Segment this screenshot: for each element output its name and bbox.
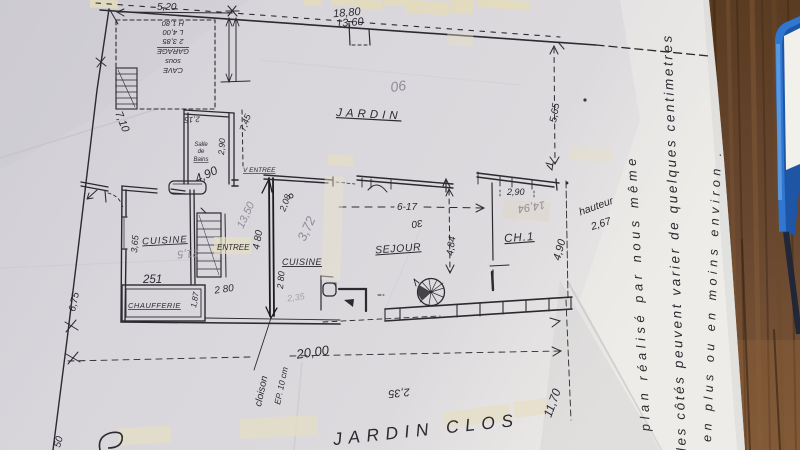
svg-text:2 80: 2 80 bbox=[275, 271, 287, 290]
svg-text:V ENTREE: V ENTREE bbox=[243, 167, 276, 174]
svg-text:GARAGE: GARAGE bbox=[156, 47, 189, 56]
svg-text:13,60: 13,60 bbox=[336, 16, 365, 30]
svg-text:2,90: 2,90 bbox=[216, 138, 227, 156]
svg-text:6-17: 6-17 bbox=[397, 202, 417, 213]
svg-text:H 1,80: H 1,80 bbox=[161, 19, 184, 28]
svg-text:CAVE: CAVE bbox=[162, 66, 183, 75]
svg-text:sous: sous bbox=[165, 57, 181, 66]
svg-text:21,5: 21,5 bbox=[176, 246, 200, 260]
svg-text:30: 30 bbox=[410, 217, 423, 230]
svg-text:2,15: 2,15 bbox=[184, 114, 202, 124]
svg-text:Salle: Salle bbox=[194, 142, 208, 148]
svg-text:L 4,00: L 4,00 bbox=[162, 28, 184, 37]
svg-text:2,90: 2,90 bbox=[506, 187, 525, 197]
svg-text:ENTREE: ENTREE bbox=[217, 243, 250, 252]
svg-text:de: de bbox=[198, 149, 205, 155]
svg-text:CH.1: CH.1 bbox=[504, 231, 535, 245]
svg-text:CUISINE: CUISINE bbox=[282, 257, 323, 267]
svg-text:5,20: 5,20 bbox=[157, 2, 177, 13]
svg-text:251: 251 bbox=[142, 274, 162, 286]
svg-text:CHAUFFERIE: CHAUFFERIE bbox=[128, 301, 181, 310]
svg-text:2,35: 2,35 bbox=[387, 385, 411, 399]
svg-text:Bains: Bains bbox=[193, 157, 208, 163]
svg-text:3,65: 3,65 bbox=[129, 234, 141, 253]
svg-text:2 3,85: 2 3,85 bbox=[162, 37, 185, 46]
svg-text:90: 90 bbox=[390, 77, 408, 95]
